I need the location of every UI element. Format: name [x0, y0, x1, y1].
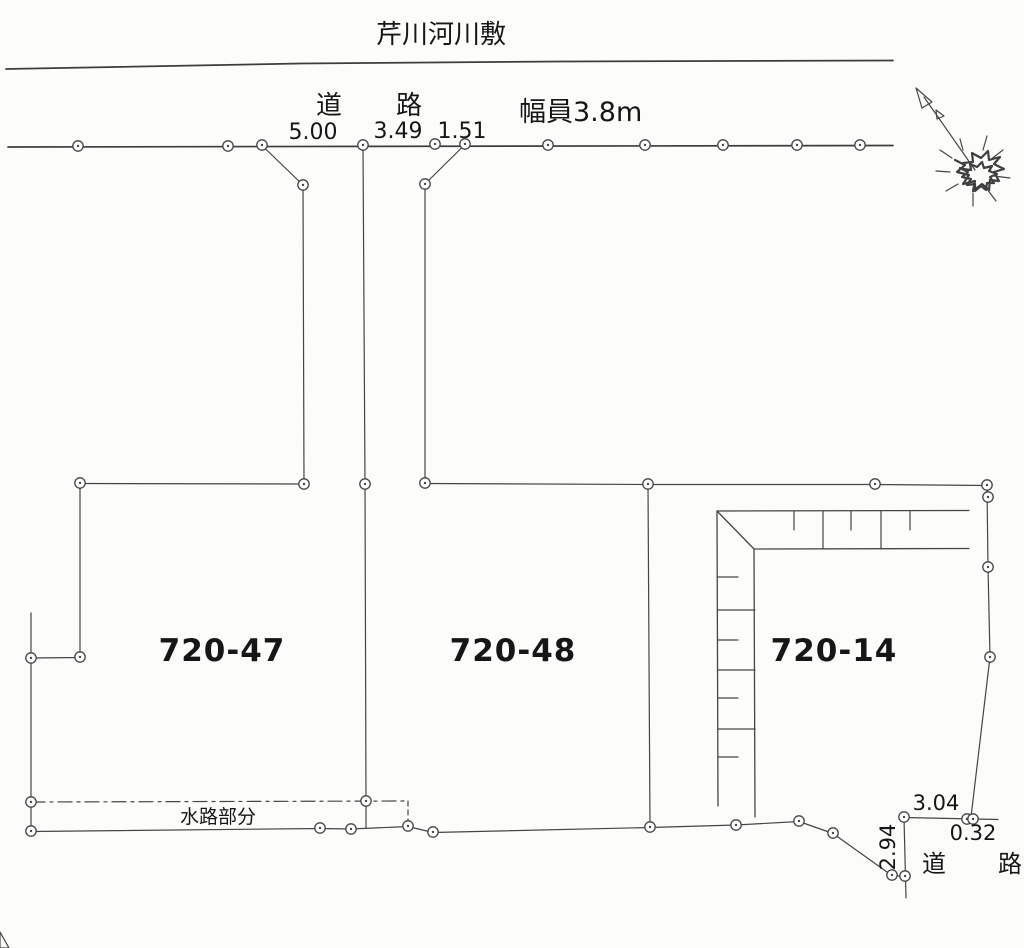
river-edge-line: [6, 61, 893, 70]
survey-map-page: 芹川河川敷 道 路 幅員3.8m 5.00 3.49 1.51 720-47 7…: [0, 0, 1024, 948]
survey-point-dot: [30, 830, 32, 832]
parcel-north-boundary-right: [425, 484, 987, 486]
waterway-label: 水路部分: [180, 806, 256, 828]
survey-point-dot: [261, 144, 263, 146]
road-corner-horizontal: [904, 818, 998, 820]
survey-point-dot: [365, 800, 367, 802]
lane-right-boundary: [425, 145, 465, 484]
survey-point-dot: [987, 496, 989, 498]
measure-5-00: 5.00: [289, 120, 338, 145]
survey-point-dot: [424, 482, 426, 484]
survey-point-dot: [77, 145, 79, 147]
survey-point-dot: [989, 656, 991, 658]
north-arrow-scribble: [955, 151, 1004, 191]
survey-point-dot: [832, 832, 834, 834]
survey-point-dot: [644, 144, 646, 146]
survey-point-dot: [972, 818, 974, 820]
north-arrow-icon: [916, 88, 1010, 206]
survey-point-dot: [874, 483, 876, 485]
survey-point-dot: [30, 657, 32, 659]
parcel-720-14-label: 720-14: [771, 633, 898, 669]
road-top-label: 道 路: [316, 91, 436, 121]
survey-point-dot: [302, 184, 304, 186]
measure-3-04: 3.04: [913, 791, 960, 815]
north-arrow-ray: [946, 184, 958, 191]
map-lines: [6, 61, 998, 899]
survey-point-dot: [303, 483, 305, 485]
survey-point-dot: [547, 144, 549, 146]
north-arrow-shaft: [924, 97, 975, 170]
survey-point-dot: [362, 144, 364, 146]
survey-point-dot: [30, 801, 32, 803]
north-arrow-ray: [983, 136, 987, 150]
parcel-47-west-boundary: [31, 484, 80, 832]
north-arrow-ray: [940, 150, 952, 158]
survey-point-dot: [798, 820, 800, 822]
parcel-720-47-label: 720-47: [159, 633, 286, 669]
road-bottom-label: 道 路: [922, 850, 1024, 878]
lane-left-boundary: [262, 146, 304, 485]
survey-point-dot: [227, 145, 229, 147]
road-width-label: 幅員3.8m: [519, 97, 642, 128]
road-corner-vertical: [904, 818, 906, 899]
north-arrow-notch: [936, 110, 944, 119]
survey-point-dot: [79, 656, 81, 658]
survey-point-dot: [319, 827, 321, 829]
survey-point-dot: [796, 144, 798, 146]
survey-point-dot: [424, 183, 426, 185]
survey-point-dot: [986, 484, 988, 486]
survey-point-dot: [859, 144, 861, 146]
measure-2-94: 2.94: [876, 824, 900, 871]
survey-point-dot: [735, 824, 737, 826]
map-labels: 芹川河川敷 道 路 幅員3.8m 5.00 3.49 1.51 720-47 7…: [159, 20, 1024, 878]
survey-point-dot: [647, 483, 649, 485]
map-east-boundary: [971, 486, 990, 818]
measure-3-49: 3.49: [374, 119, 423, 144]
survey-point-dot: [903, 816, 905, 818]
survey-point-dot: [407, 825, 409, 827]
south-boundary-line: [31, 822, 905, 877]
survey-point-dot: [350, 828, 352, 830]
survey-point-dot: [434, 143, 436, 145]
survey-point-dot: [722, 144, 724, 146]
north-arrow-ray: [987, 189, 996, 201]
survey-point-dot: [432, 831, 434, 833]
survey-points: [26, 139, 995, 881]
waterway-dashdot-line: [31, 801, 408, 802]
survey-point-dot: [364, 483, 366, 485]
scan-artifact: [0, 932, 9, 948]
survey-point-dot: [904, 875, 906, 877]
north-arrow-ray: [936, 171, 950, 172]
survey-point-dot: [891, 874, 893, 876]
survey-point-dot: [649, 826, 651, 828]
parcel-720-48-label: 720-48: [450, 633, 577, 669]
survey-point-dot: [987, 566, 989, 568]
survey-point-dot: [79, 482, 81, 484]
parcel-48-east-boundary: [648, 485, 650, 828]
measure-0-32: 0.32: [950, 821, 997, 845]
road-survey-line: [8, 146, 893, 148]
cadastral-drawing: 芹川河川敷 道 路 幅員3.8m 5.00 3.49 1.51 720-47 7…: [0, 0, 1024, 948]
parcel-north-boundary-left: [80, 484, 304, 485]
river-title: 芹川河川敷: [376, 20, 506, 50]
measure-1-51: 1.51: [438, 119, 487, 144]
